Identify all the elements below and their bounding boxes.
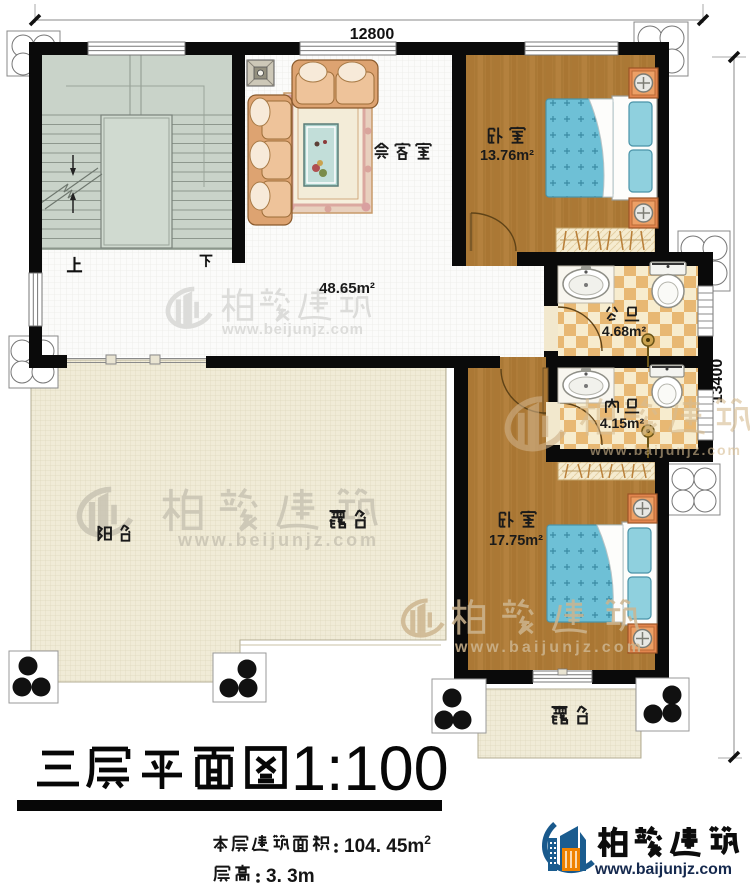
svg-text:12800: 12800 bbox=[350, 26, 395, 43]
svg-text:4.68m²: 4.68m² bbox=[602, 323, 647, 339]
svg-text:www.baijunjz.com: www.baijunjz.com bbox=[594, 861, 732, 878]
svg-text:4.15m²: 4.15m² bbox=[600, 415, 645, 431]
svg-text:1:100: 1:100 bbox=[291, 734, 449, 804]
svg-text:104. 45m2: 104. 45m2 bbox=[344, 833, 431, 857]
svg-text:www.beijunjz.com: www.beijunjz.com bbox=[221, 321, 363, 338]
svg-text:3. 3m: 3. 3m bbox=[266, 866, 315, 887]
svg-text:17.75m²: 17.75m² bbox=[489, 533, 543, 549]
svg-text:48.65m²: 48.65m² bbox=[319, 280, 375, 297]
svg-text:13.76m²: 13.76m² bbox=[480, 148, 534, 164]
